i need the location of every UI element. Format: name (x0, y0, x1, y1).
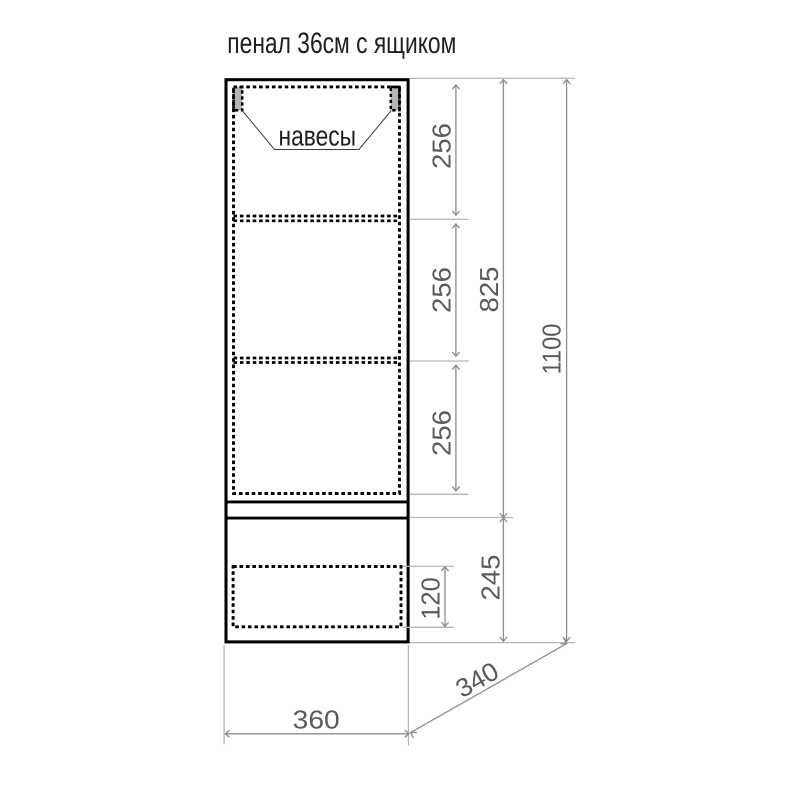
svg-text:пенал 36см с ящиком: пенал 36см с ящиком (227, 27, 456, 60)
svg-text:120: 120 (416, 577, 446, 620)
svg-text:256: 256 (426, 123, 456, 169)
svg-text:1100: 1100 (536, 324, 566, 375)
svg-text:256: 256 (426, 410, 456, 456)
svg-text:навесы: навесы (279, 121, 357, 152)
svg-text:245: 245 (475, 555, 505, 601)
svg-text:256: 256 (426, 267, 456, 313)
svg-text:825: 825 (474, 267, 504, 313)
svg-text:360: 360 (293, 705, 340, 735)
